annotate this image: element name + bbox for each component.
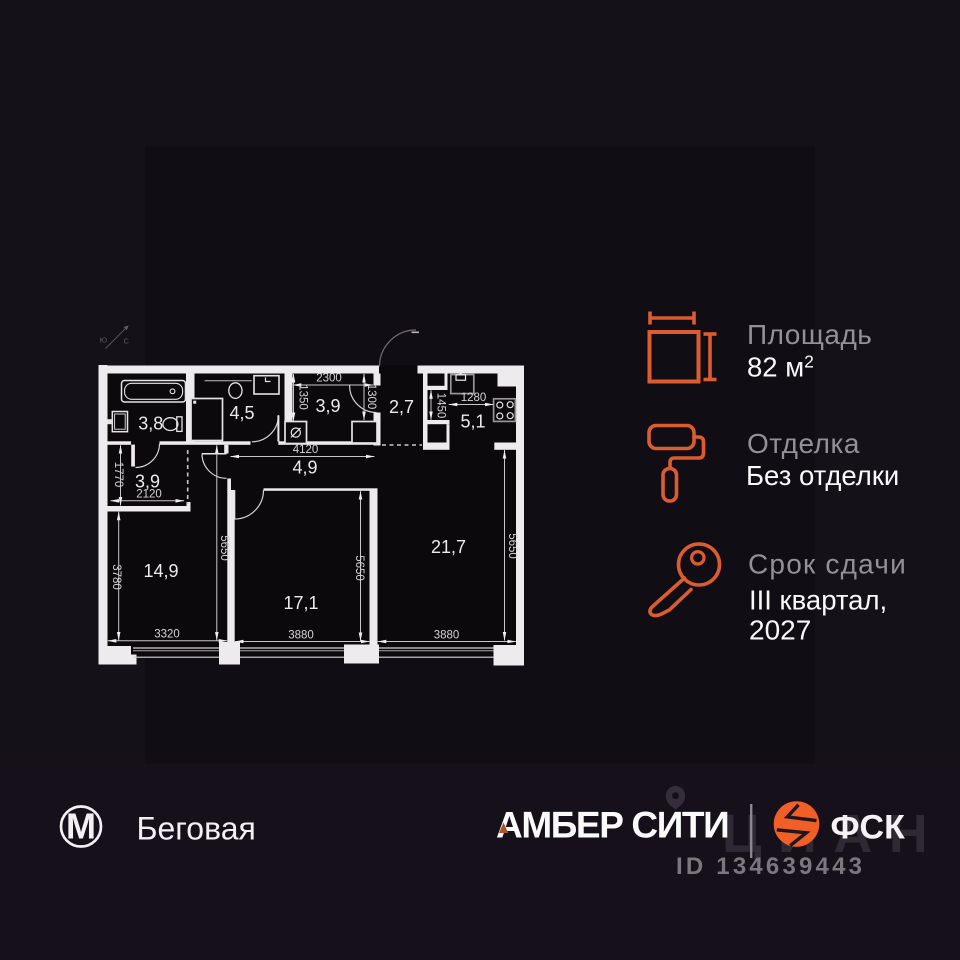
- svg-text:2120: 2120: [136, 489, 162, 501]
- svg-text:5,1: 5,1: [460, 412, 485, 432]
- svg-text:5650: 5650: [506, 533, 518, 559]
- svg-text:3780: 3780: [110, 564, 122, 590]
- svg-text:4120: 4120: [293, 444, 319, 456]
- svg-text:С: С: [124, 337, 130, 346]
- svg-text:III квартал,: III квартал,: [749, 585, 887, 616]
- svg-text:17,1: 17,1: [283, 593, 318, 613]
- svg-text:Ю: Ю: [100, 336, 108, 345]
- svg-text:ID 134639443: ID 134639443: [676, 853, 865, 880]
- svg-text:1300: 1300: [365, 384, 377, 410]
- svg-text:2,7: 2,7: [389, 397, 414, 417]
- svg-text:3,8: 3,8: [138, 414, 163, 434]
- svg-text:М: М: [66, 806, 96, 847]
- svg-text:1770: 1770: [112, 462, 124, 488]
- svg-text:Срок сдачи: Срок сдачи: [748, 549, 907, 580]
- svg-text:3,9: 3,9: [315, 396, 340, 416]
- svg-text:5650: 5650: [218, 535, 230, 561]
- svg-text:82 м2: 82 м2: [747, 352, 814, 383]
- svg-text:3880: 3880: [434, 629, 460, 641]
- svg-text:21,7: 21,7: [431, 537, 466, 557]
- svg-text:2027: 2027: [749, 615, 811, 646]
- svg-text:АМБЕР СИТИ: АМБЕР СИТИ: [496, 805, 728, 846]
- svg-text:Отделка: Отделка: [747, 428, 860, 459]
- svg-text:1450: 1450: [435, 393, 447, 419]
- svg-text:5650: 5650: [353, 555, 365, 581]
- svg-text:1280: 1280: [461, 392, 487, 404]
- svg-text:Беговая: Беговая: [137, 811, 256, 847]
- svg-text:4,9: 4,9: [292, 458, 317, 478]
- svg-text:Без отделки: Без отделки: [746, 460, 899, 491]
- svg-text:4,5: 4,5: [229, 403, 254, 423]
- svg-text:14,9: 14,9: [143, 561, 178, 581]
- svg-text:1350: 1350: [297, 384, 309, 410]
- svg-text:Площадь: Площадь: [747, 319, 872, 350]
- svg-text:3320: 3320: [154, 629, 180, 641]
- svg-text:ФСК: ФСК: [831, 809, 906, 847]
- svg-text:2300: 2300: [316, 373, 342, 385]
- svg-text:3880: 3880: [288, 629, 314, 641]
